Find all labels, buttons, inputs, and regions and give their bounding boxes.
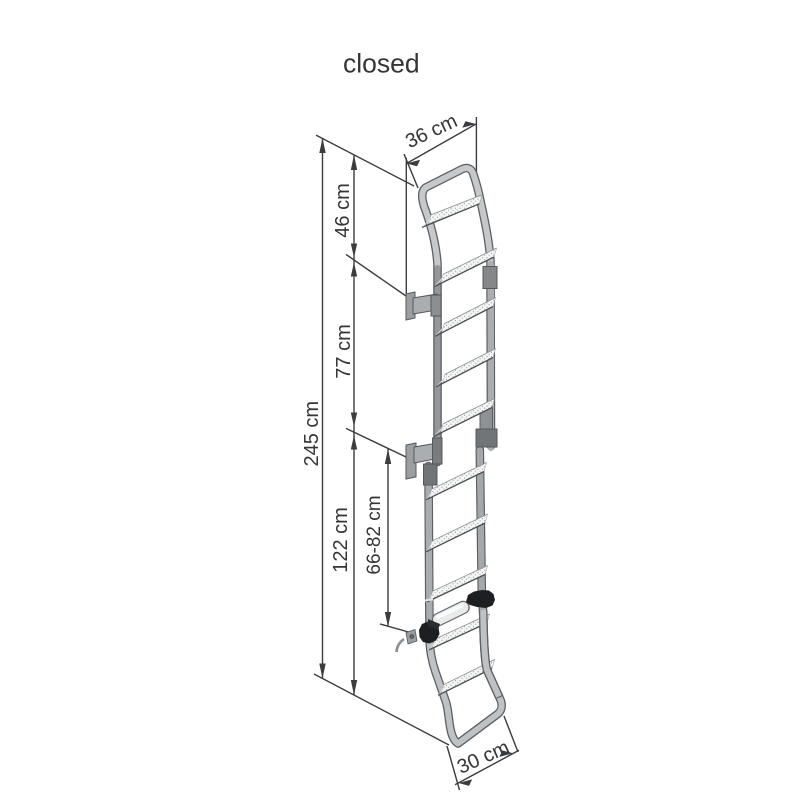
svg-text:77 cm: 77 cm (333, 324, 355, 378)
svg-text:closed: closed (343, 49, 420, 79)
svg-text:66-82 cm: 66-82 cm (364, 495, 385, 574)
svg-text:245 cm: 245 cm (301, 401, 323, 467)
svg-text:46 cm: 46 cm (332, 183, 354, 237)
svg-text:122 cm: 122 cm (330, 507, 352, 573)
